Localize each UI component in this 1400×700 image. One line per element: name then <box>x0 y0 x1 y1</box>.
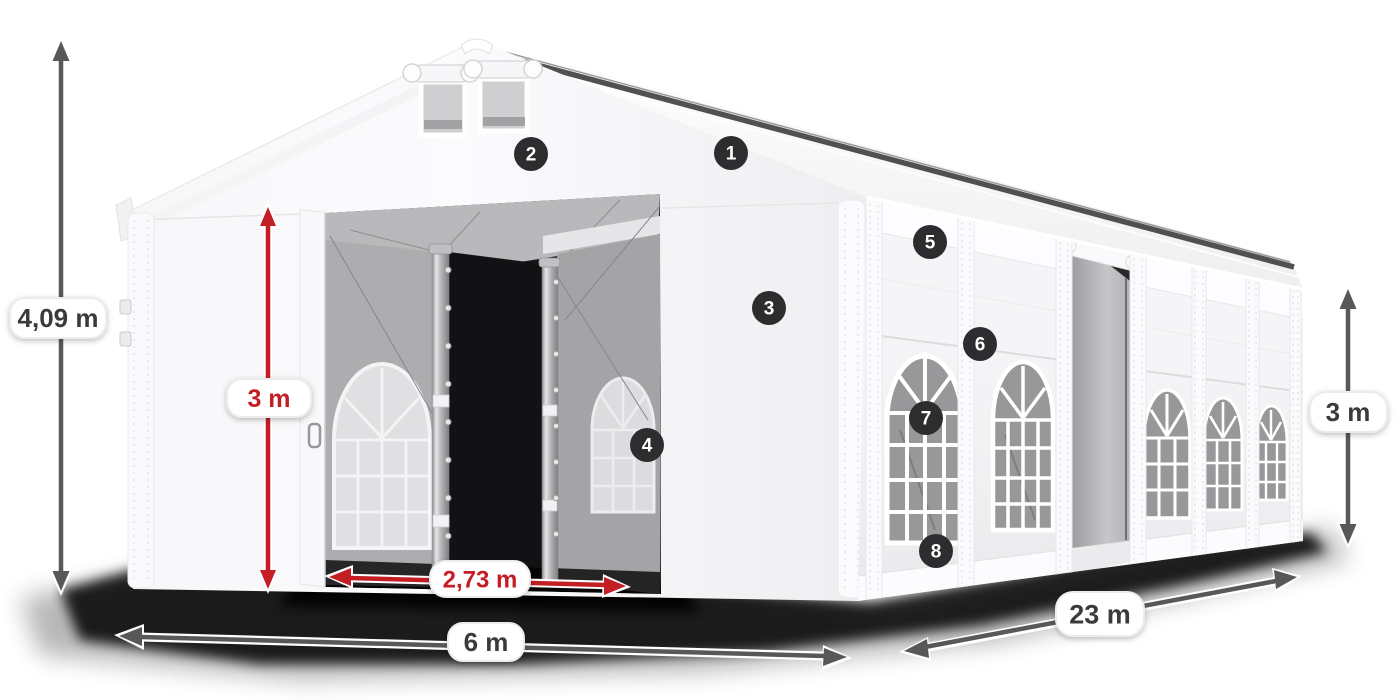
svg-text:2,73 m: 2,73 m <box>443 566 518 593</box>
side-height-label: 3 m <box>1310 392 1387 432</box>
front-door-opening <box>325 194 661 594</box>
callout-badge-3: 3 <box>752 291 786 325</box>
callout-badge-6: 6 <box>963 327 997 361</box>
svg-text:4: 4 <box>642 436 653 457</box>
diagram-canvas: 4,09 m 3 m 2,73 m 6 m 23 m 3 m 1 2 3 4 5 <box>0 0 1400 700</box>
side-window-5 <box>1256 406 1287 500</box>
side-window-3 <box>1144 390 1190 518</box>
total-height-label: 4,09 m <box>10 298 106 338</box>
svg-text:6 m: 6 m <box>464 627 509 657</box>
svg-text:1: 1 <box>726 144 737 165</box>
length-label: 23 m <box>1056 592 1144 636</box>
svg-text:5: 5 <box>925 233 936 254</box>
side-window-4 <box>1204 398 1242 510</box>
svg-text:6: 6 <box>975 335 986 356</box>
callout-badge-8: 8 <box>919 534 953 568</box>
svg-text:2: 2 <box>526 145 537 166</box>
interior-window-left <box>334 364 430 548</box>
callout-badge-5: 5 <box>913 225 947 259</box>
door-width-label: 2,73 m <box>430 561 530 597</box>
svg-text:23 m: 23 m <box>1069 599 1131 629</box>
svg-text:3: 3 <box>764 299 775 320</box>
svg-text:3 m: 3 m <box>247 385 290 413</box>
callout-badge-7: 7 <box>909 401 943 435</box>
tent-dimension-diagram: 4,09 m 3 m 2,73 m 6 m 23 m 3 m 1 2 3 4 5 <box>0 0 1400 700</box>
side-window-1 <box>887 352 962 543</box>
interior-corridor <box>449 252 543 587</box>
front-left-corner-strap <box>120 213 154 588</box>
side-door-opening <box>1062 238 1140 574</box>
side-window-2 <box>993 362 1053 530</box>
svg-text:3 m: 3 m <box>1326 397 1371 427</box>
callout-badge-2: 2 <box>514 137 548 171</box>
callout-badge-1: 1 <box>714 136 748 170</box>
svg-text:7: 7 <box>921 409 932 430</box>
callout-badge-4: 4 <box>630 428 664 462</box>
svg-text:4,09 m: 4,09 m <box>18 303 99 333</box>
svg-text:8: 8 <box>931 542 942 563</box>
inner-height-label: 3 m <box>227 379 311 417</box>
width-label: 6 m <box>448 623 524 661</box>
